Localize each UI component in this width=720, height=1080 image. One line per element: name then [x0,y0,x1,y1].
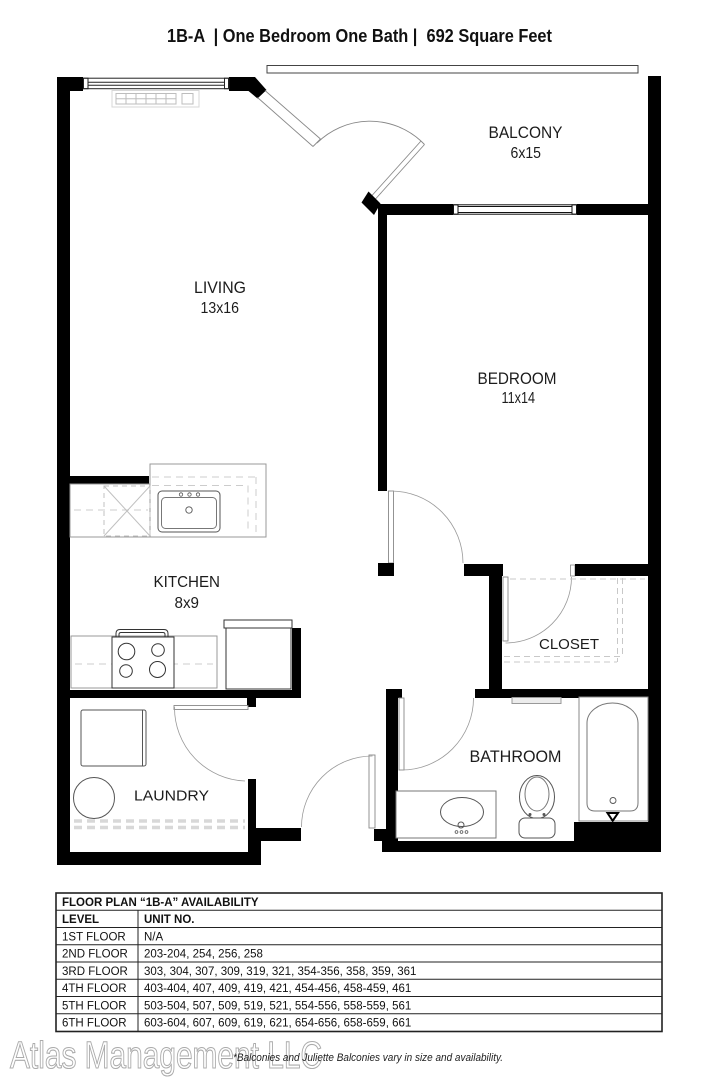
svg-text:KITCHEN: KITCHEN [154,574,221,591]
svg-text:6x15: 6x15 [511,145,542,162]
svg-text:LIVING: LIVING [194,278,246,297]
svg-text:403-404, 407, 409, 419, 421, 4: 403-404, 407, 409, 419, 421, 454-456, 45… [144,983,411,995]
svg-text:2ND FLOOR: 2ND FLOOR [62,949,128,961]
svg-text:303, 304, 307, 309, 319, 321,: 303, 304, 307, 309, 319, 321, 354-356, 3… [144,966,416,978]
svg-text:5TH FLOOR: 5TH FLOOR [62,1000,127,1012]
svg-text:CLOSET: CLOSET [539,636,599,653]
svg-text:6TH FLOOR: 6TH FLOOR [62,1018,127,1030]
svg-text:N/A: N/A [144,931,164,943]
svg-text:1ST FLOOR: 1ST FLOOR [62,931,126,943]
svg-text:*Balconies and Juliette Balcon: *Balconies and Juliette Balconies vary i… [233,1052,503,1064]
svg-text:8x9: 8x9 [175,595,200,612]
svg-text:BEDROOM: BEDROOM [478,369,557,388]
svg-text:203-204, 254, 256, 258: 203-204, 254, 256, 258 [144,949,263,961]
svg-text:1B-A | One Bedroom One Bath |: 1B-A | One Bedroom One Bath | 692 Square… [167,26,552,46]
svg-text:BATHROOM: BATHROOM [470,748,562,766]
svg-text:FLOOR PLAN “1B-A” AVAILABILITY: FLOOR PLAN “1B-A” AVAILABILITY [62,897,259,909]
svg-text:603-604, 607, 609, 619, 621, 6: 603-604, 607, 609, 619, 621, 654-656, 65… [144,1018,411,1030]
svg-text:UNIT NO.: UNIT NO. [144,914,194,926]
svg-text:BALCONY: BALCONY [489,123,563,142]
svg-text:503-504, 507, 509, 519, 521, 5: 503-504, 507, 509, 519, 521, 554-556, 55… [144,1000,411,1012]
svg-text:3RD FLOOR: 3RD FLOOR [62,966,128,978]
svg-text:LEVEL: LEVEL [62,914,99,926]
svg-text:11x14: 11x14 [502,390,536,407]
svg-text:13x16: 13x16 [201,300,240,317]
svg-text:4TH FLOOR: 4TH FLOOR [62,983,127,995]
svg-text:LAUNDRY: LAUNDRY [134,788,209,805]
